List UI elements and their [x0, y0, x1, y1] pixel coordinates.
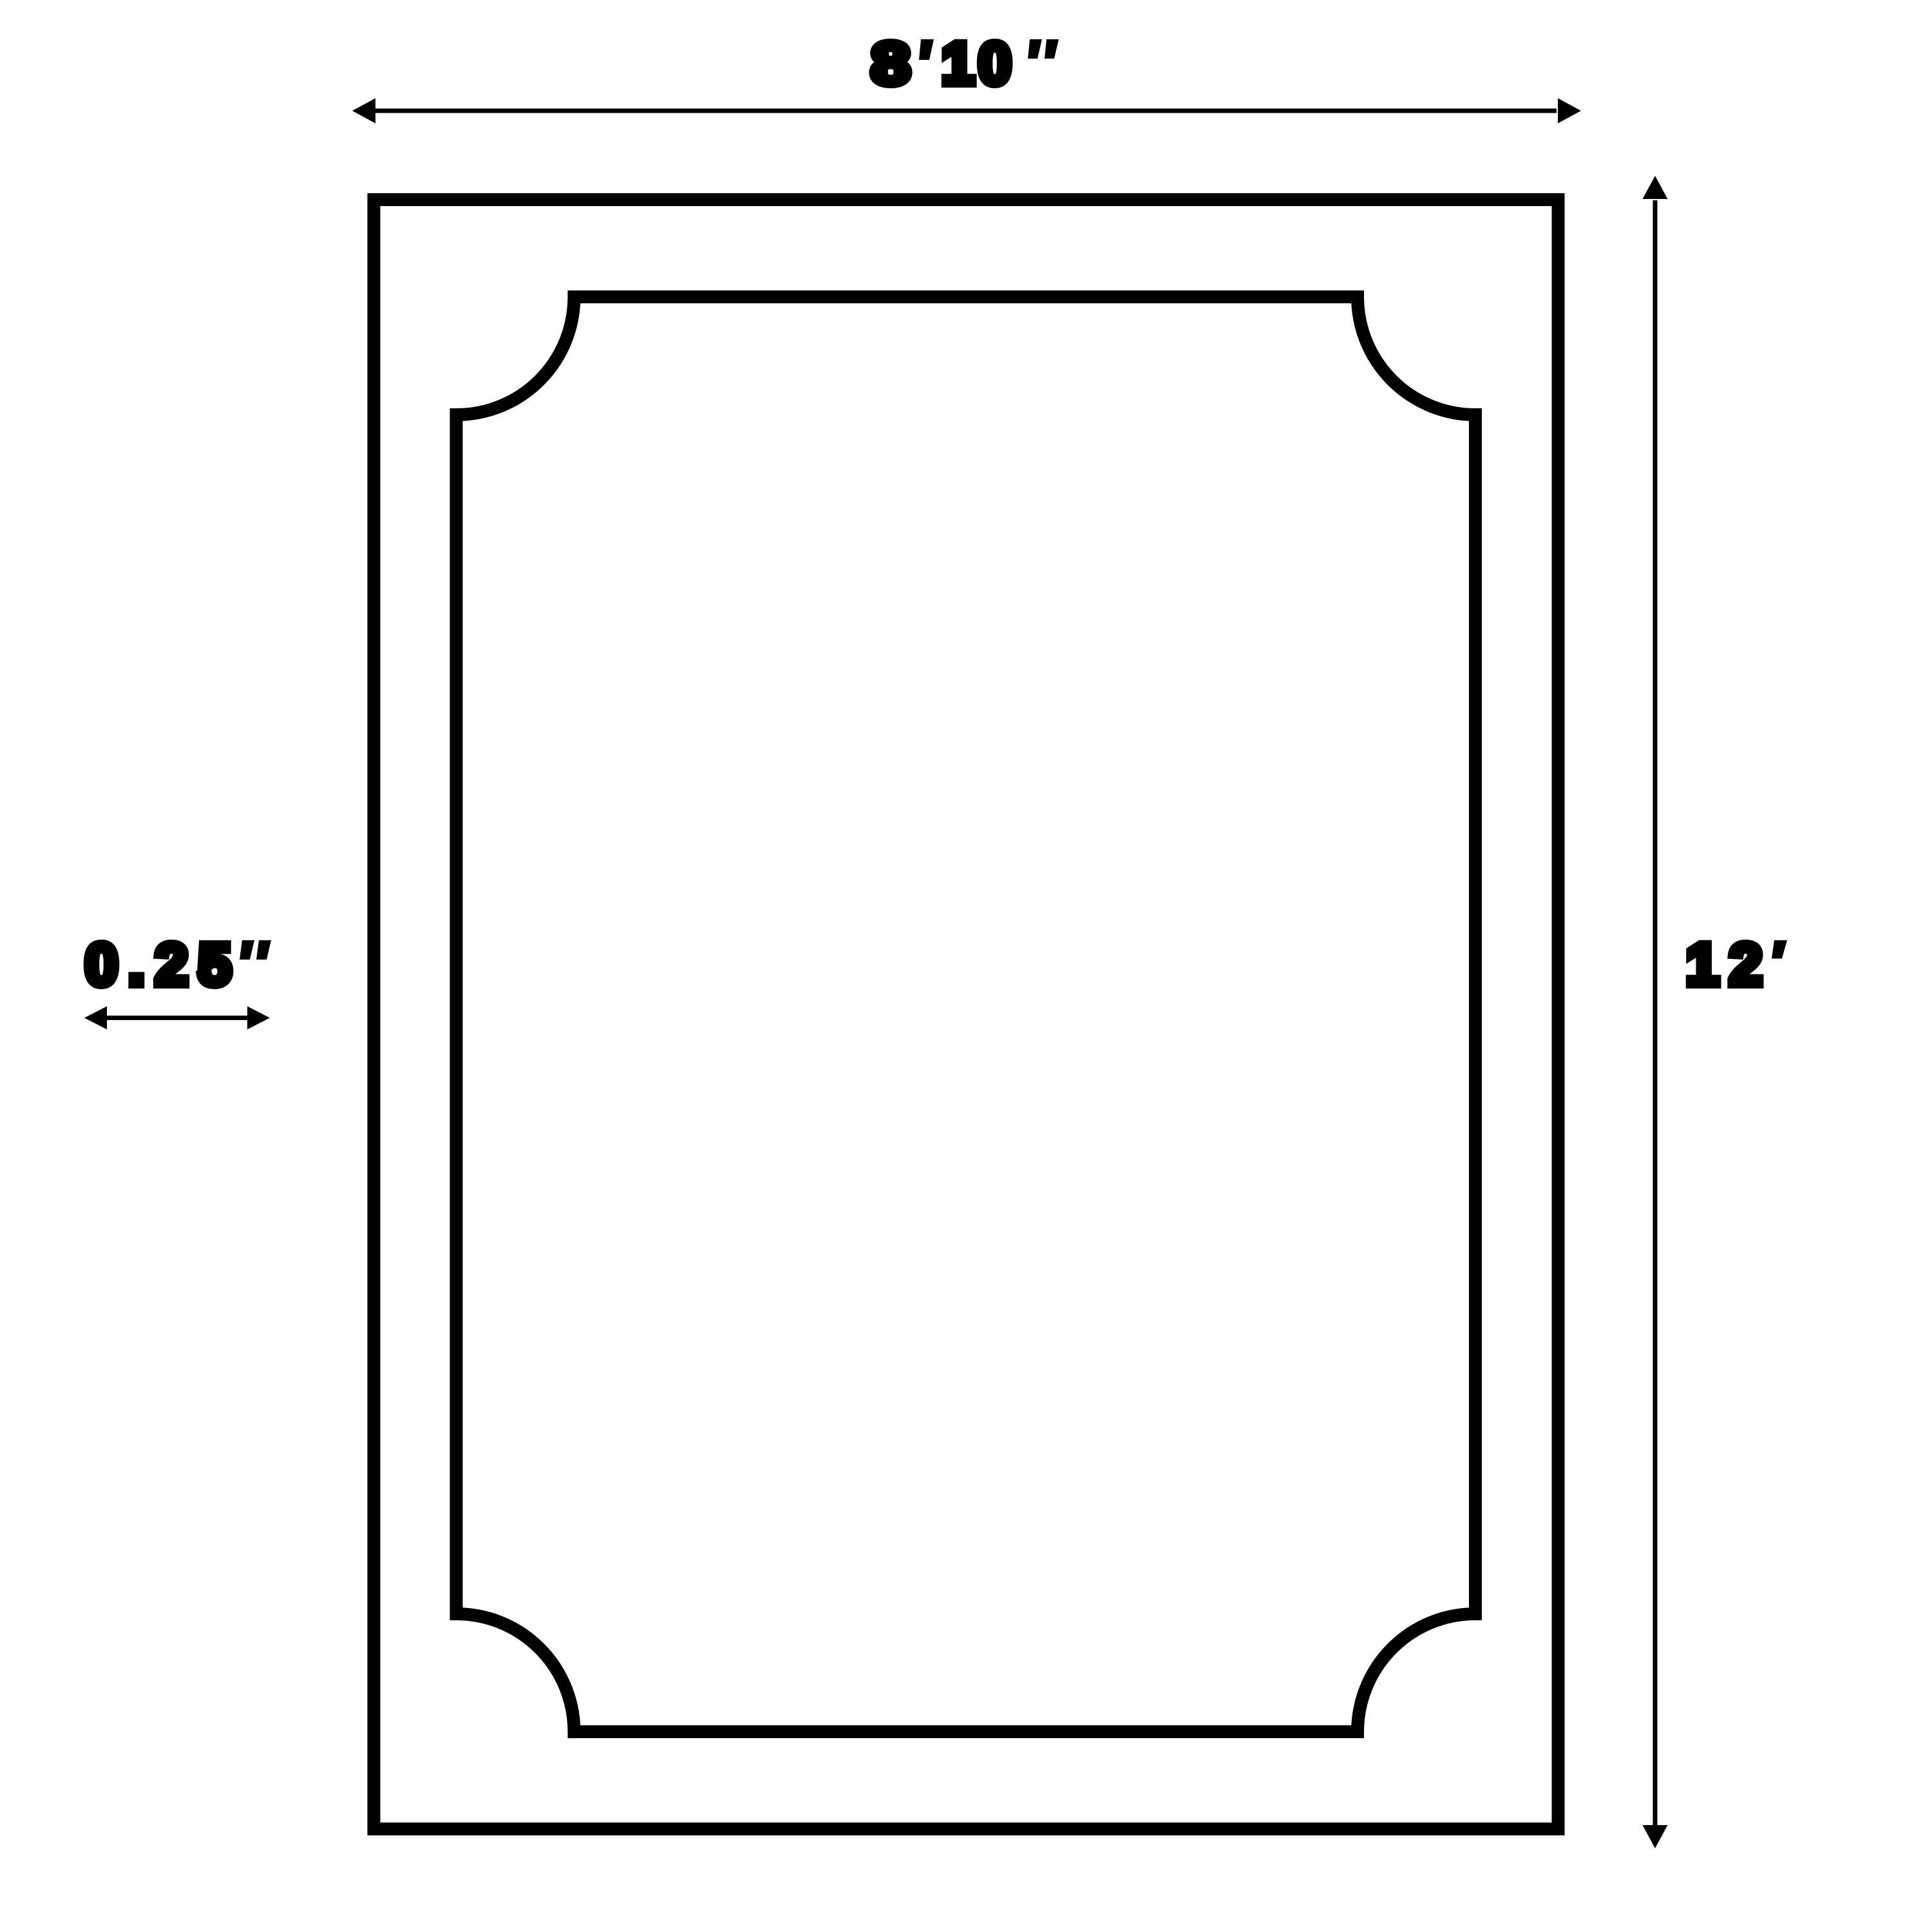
svg-text:10: 10	[942, 31, 1015, 97]
svg-text:12: 12	[1686, 932, 1772, 998]
svg-text:8: 8	[871, 31, 910, 97]
svg-text:0.25: 0.25	[85, 932, 241, 998]
